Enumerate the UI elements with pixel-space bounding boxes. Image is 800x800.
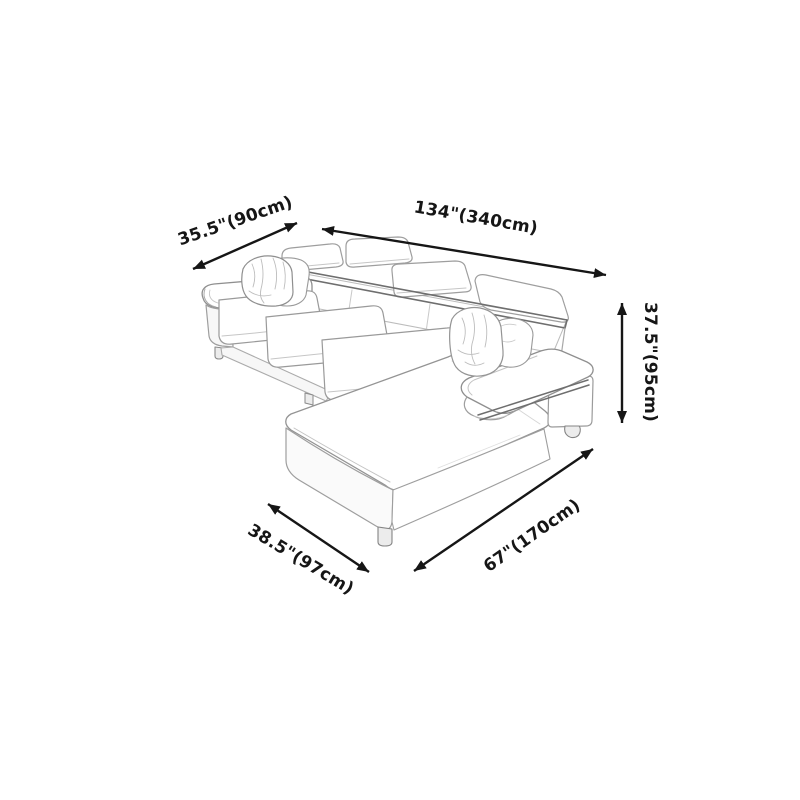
left-arm-pillows [242, 256, 309, 306]
height-label: 37.5"(95cm) [640, 302, 660, 422]
sofa-dimension-diagram: 35.5"(90cm) 134"(340cm) 37.5"(95cm) 38.5… [0, 0, 800, 800]
right-block-foot [565, 426, 581, 438]
front-width-label: 38.5"(97cm) [244, 520, 357, 599]
diagram-canvas: 35.5"(90cm) 134"(340cm) 37.5"(95cm) 38.5… [0, 0, 800, 800]
dimension-height: 37.5"(95cm) [622, 302, 660, 423]
chaise-front-foot [378, 527, 392, 546]
dimension-front-width: 38.5"(97cm) [244, 504, 369, 599]
corner-pillow-front [450, 307, 503, 376]
headrest-3-pad [392, 261, 471, 297]
chaise-length-label: 67"(170cm) [480, 495, 584, 576]
back-depth-label: 35.5"(90cm) [175, 192, 295, 250]
sofa-line-drawing [202, 237, 593, 546]
mid-foot [305, 393, 313, 405]
total-length-label: 134"(340cm) [412, 197, 539, 238]
